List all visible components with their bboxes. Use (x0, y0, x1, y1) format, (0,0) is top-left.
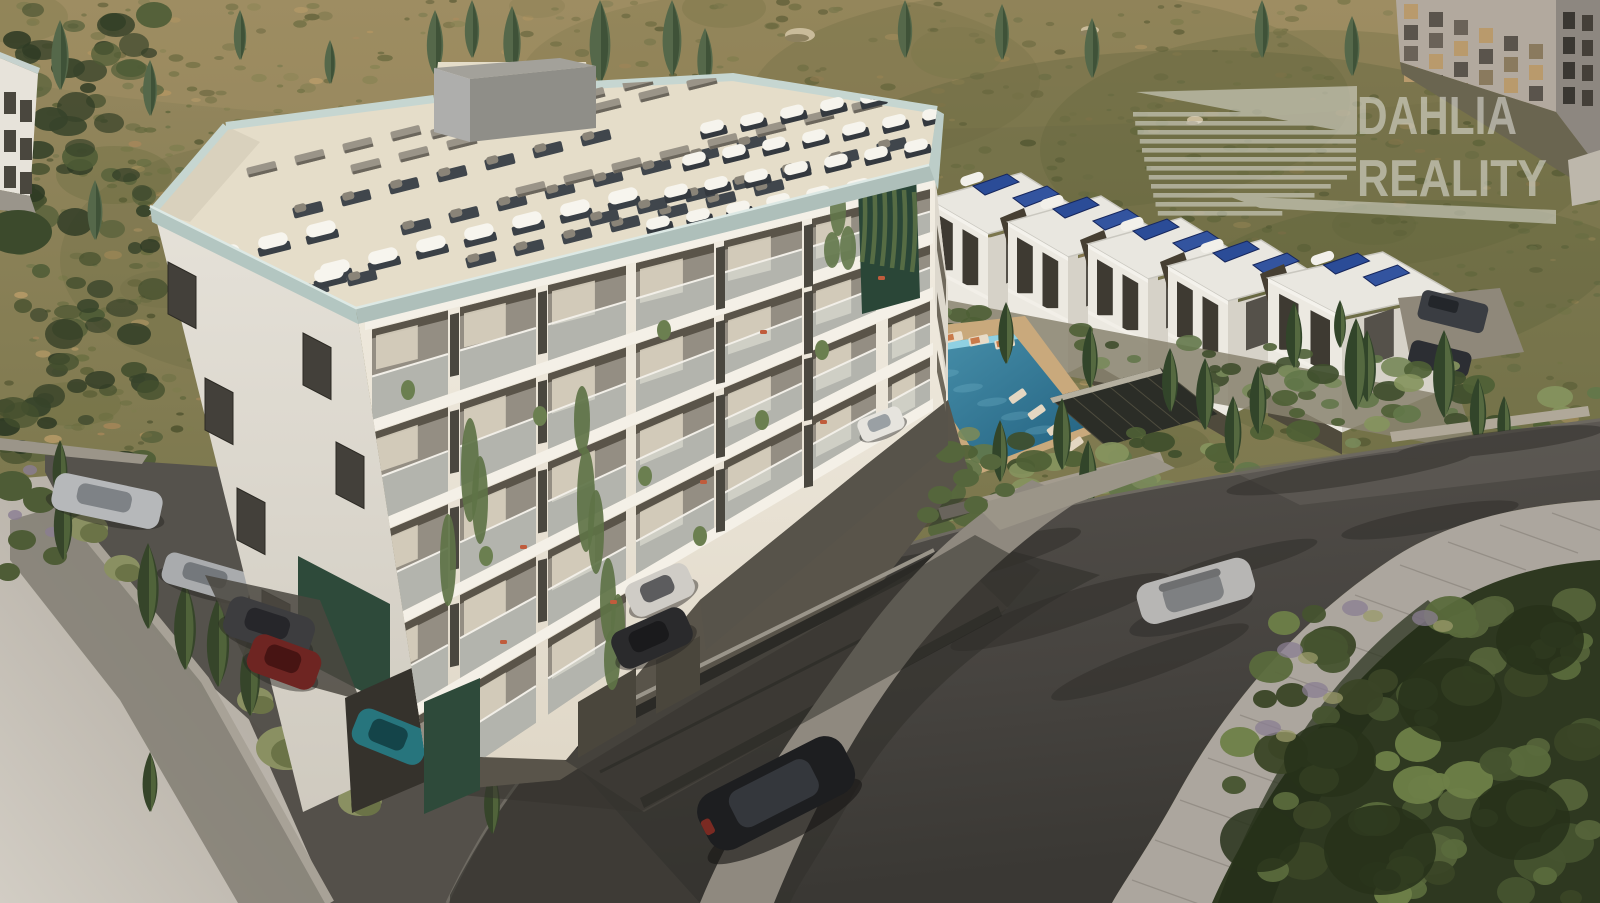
svg-text:DAHLIA: DAHLIA (1357, 86, 1517, 146)
svg-text:REALITY: REALITY (1357, 150, 1547, 208)
